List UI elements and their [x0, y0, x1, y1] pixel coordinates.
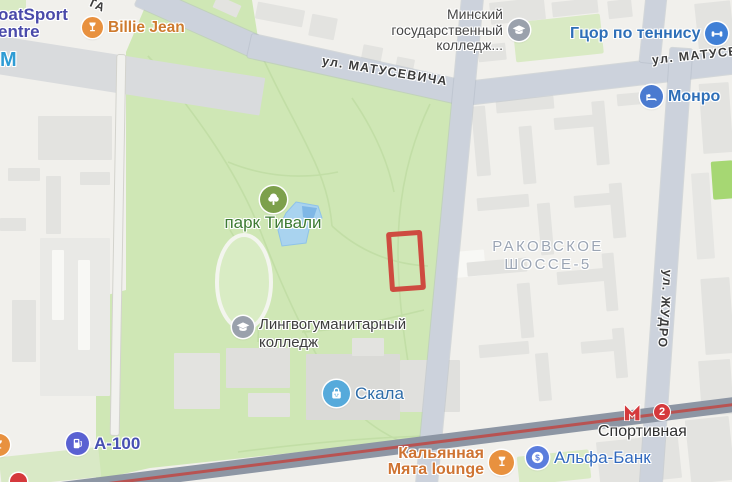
poi-label: колледж: [259, 334, 406, 352]
highlight-rectangle: [386, 230, 426, 292]
poi-metro-sportivnaya-icons[interactable]: 2: [622, 403, 671, 421]
goblet-icon: [489, 450, 514, 475]
poi-label: entre: [0, 23, 68, 40]
tree-icon: [260, 186, 287, 213]
building: [46, 176, 61, 234]
building: [308, 14, 338, 41]
metro-line-badge: 2: [653, 403, 671, 421]
dumbbell-icon: [705, 22, 728, 45]
poi-label: oatSport: [0, 6, 68, 23]
poi-label: Billie Jean: [108, 19, 185, 37]
poi-label: Мята lounge: [364, 462, 484, 478]
poi-a100-fuel[interactable]: А-100: [66, 432, 140, 455]
building: [607, 0, 633, 19]
poi-label: Скала: [355, 384, 404, 404]
building: [52, 250, 64, 320]
graduation-cap-icon: [508, 19, 530, 41]
poi-label: Альфа-Банк: [554, 448, 651, 468]
poi-label: колледж...: [375, 38, 503, 54]
poi-alfa-bank[interactable]: $ Альфа-Банк: [526, 446, 651, 469]
poi-monro-hotel[interactable]: Монро: [640, 85, 720, 108]
poi-label: Кальянная: [364, 446, 484, 462]
poi-boatsport-centre[interactable]: oatSport entre: [0, 6, 68, 40]
building: [685, 416, 732, 482]
poi-label: Монро: [668, 88, 720, 106]
poi-label: А-100: [94, 434, 140, 454]
graduation-cap-icon: [232, 316, 254, 338]
building: [700, 277, 732, 355]
poi-sportivnaya-station[interactable]: Спортивная: [598, 423, 687, 441]
poi-myata-lounge[interactable]: Кальянная Мята lounge: [364, 446, 514, 478]
sports-field: [711, 160, 732, 199]
poi-billie-jean[interactable]: Billie Jean: [82, 17, 185, 38]
shopping-bag-icon: [323, 380, 350, 407]
bed-icon: [640, 85, 663, 108]
poi-label: Минский: [375, 7, 503, 23]
poi-tennis-center[interactable]: Гцор по теннису: [570, 22, 728, 45]
bank-icon: $: [526, 446, 549, 469]
building: [174, 353, 220, 409]
building: [12, 300, 36, 362]
poi-minsk-college[interactable]: Минский государственный колледж...: [375, 7, 530, 54]
poi-lingvo-college[interactable]: Лингвогуманитарный колледж: [232, 316, 406, 351]
building: [226, 348, 290, 388]
metro-icon: [622, 404, 646, 421]
poi-metro-m-fragment[interactable]: М: [0, 49, 17, 72]
building: [248, 393, 290, 417]
stadium-oval: [217, 235, 271, 329]
fuel-pump-icon: [66, 432, 89, 455]
building: [40, 238, 110, 396]
building: [38, 116, 112, 160]
building: [80, 172, 110, 185]
poi-label: государственный: [375, 23, 503, 39]
svg-text:$: $: [535, 452, 540, 462]
building: [78, 260, 90, 350]
map-canvas[interactable]: ул. МАТУСЕВИЧА ул. МАТУСЕВИЧА ул. ЖУДРО …: [0, 0, 732, 482]
building: [0, 218, 26, 231]
poi-park-tivali[interactable]: парк Тивали: [203, 213, 343, 233]
cocktail-icon: [82, 17, 103, 38]
building: [8, 168, 40, 181]
poi-label: Лингвогуманитарный: [259, 316, 406, 334]
poi-label: Гцор по теннису: [570, 25, 700, 43]
poi-skala[interactable]: Скала: [323, 380, 404, 407]
district-label-rakovskoe: РАКОВСКОЕ ШОССЕ-5: [478, 238, 618, 274]
